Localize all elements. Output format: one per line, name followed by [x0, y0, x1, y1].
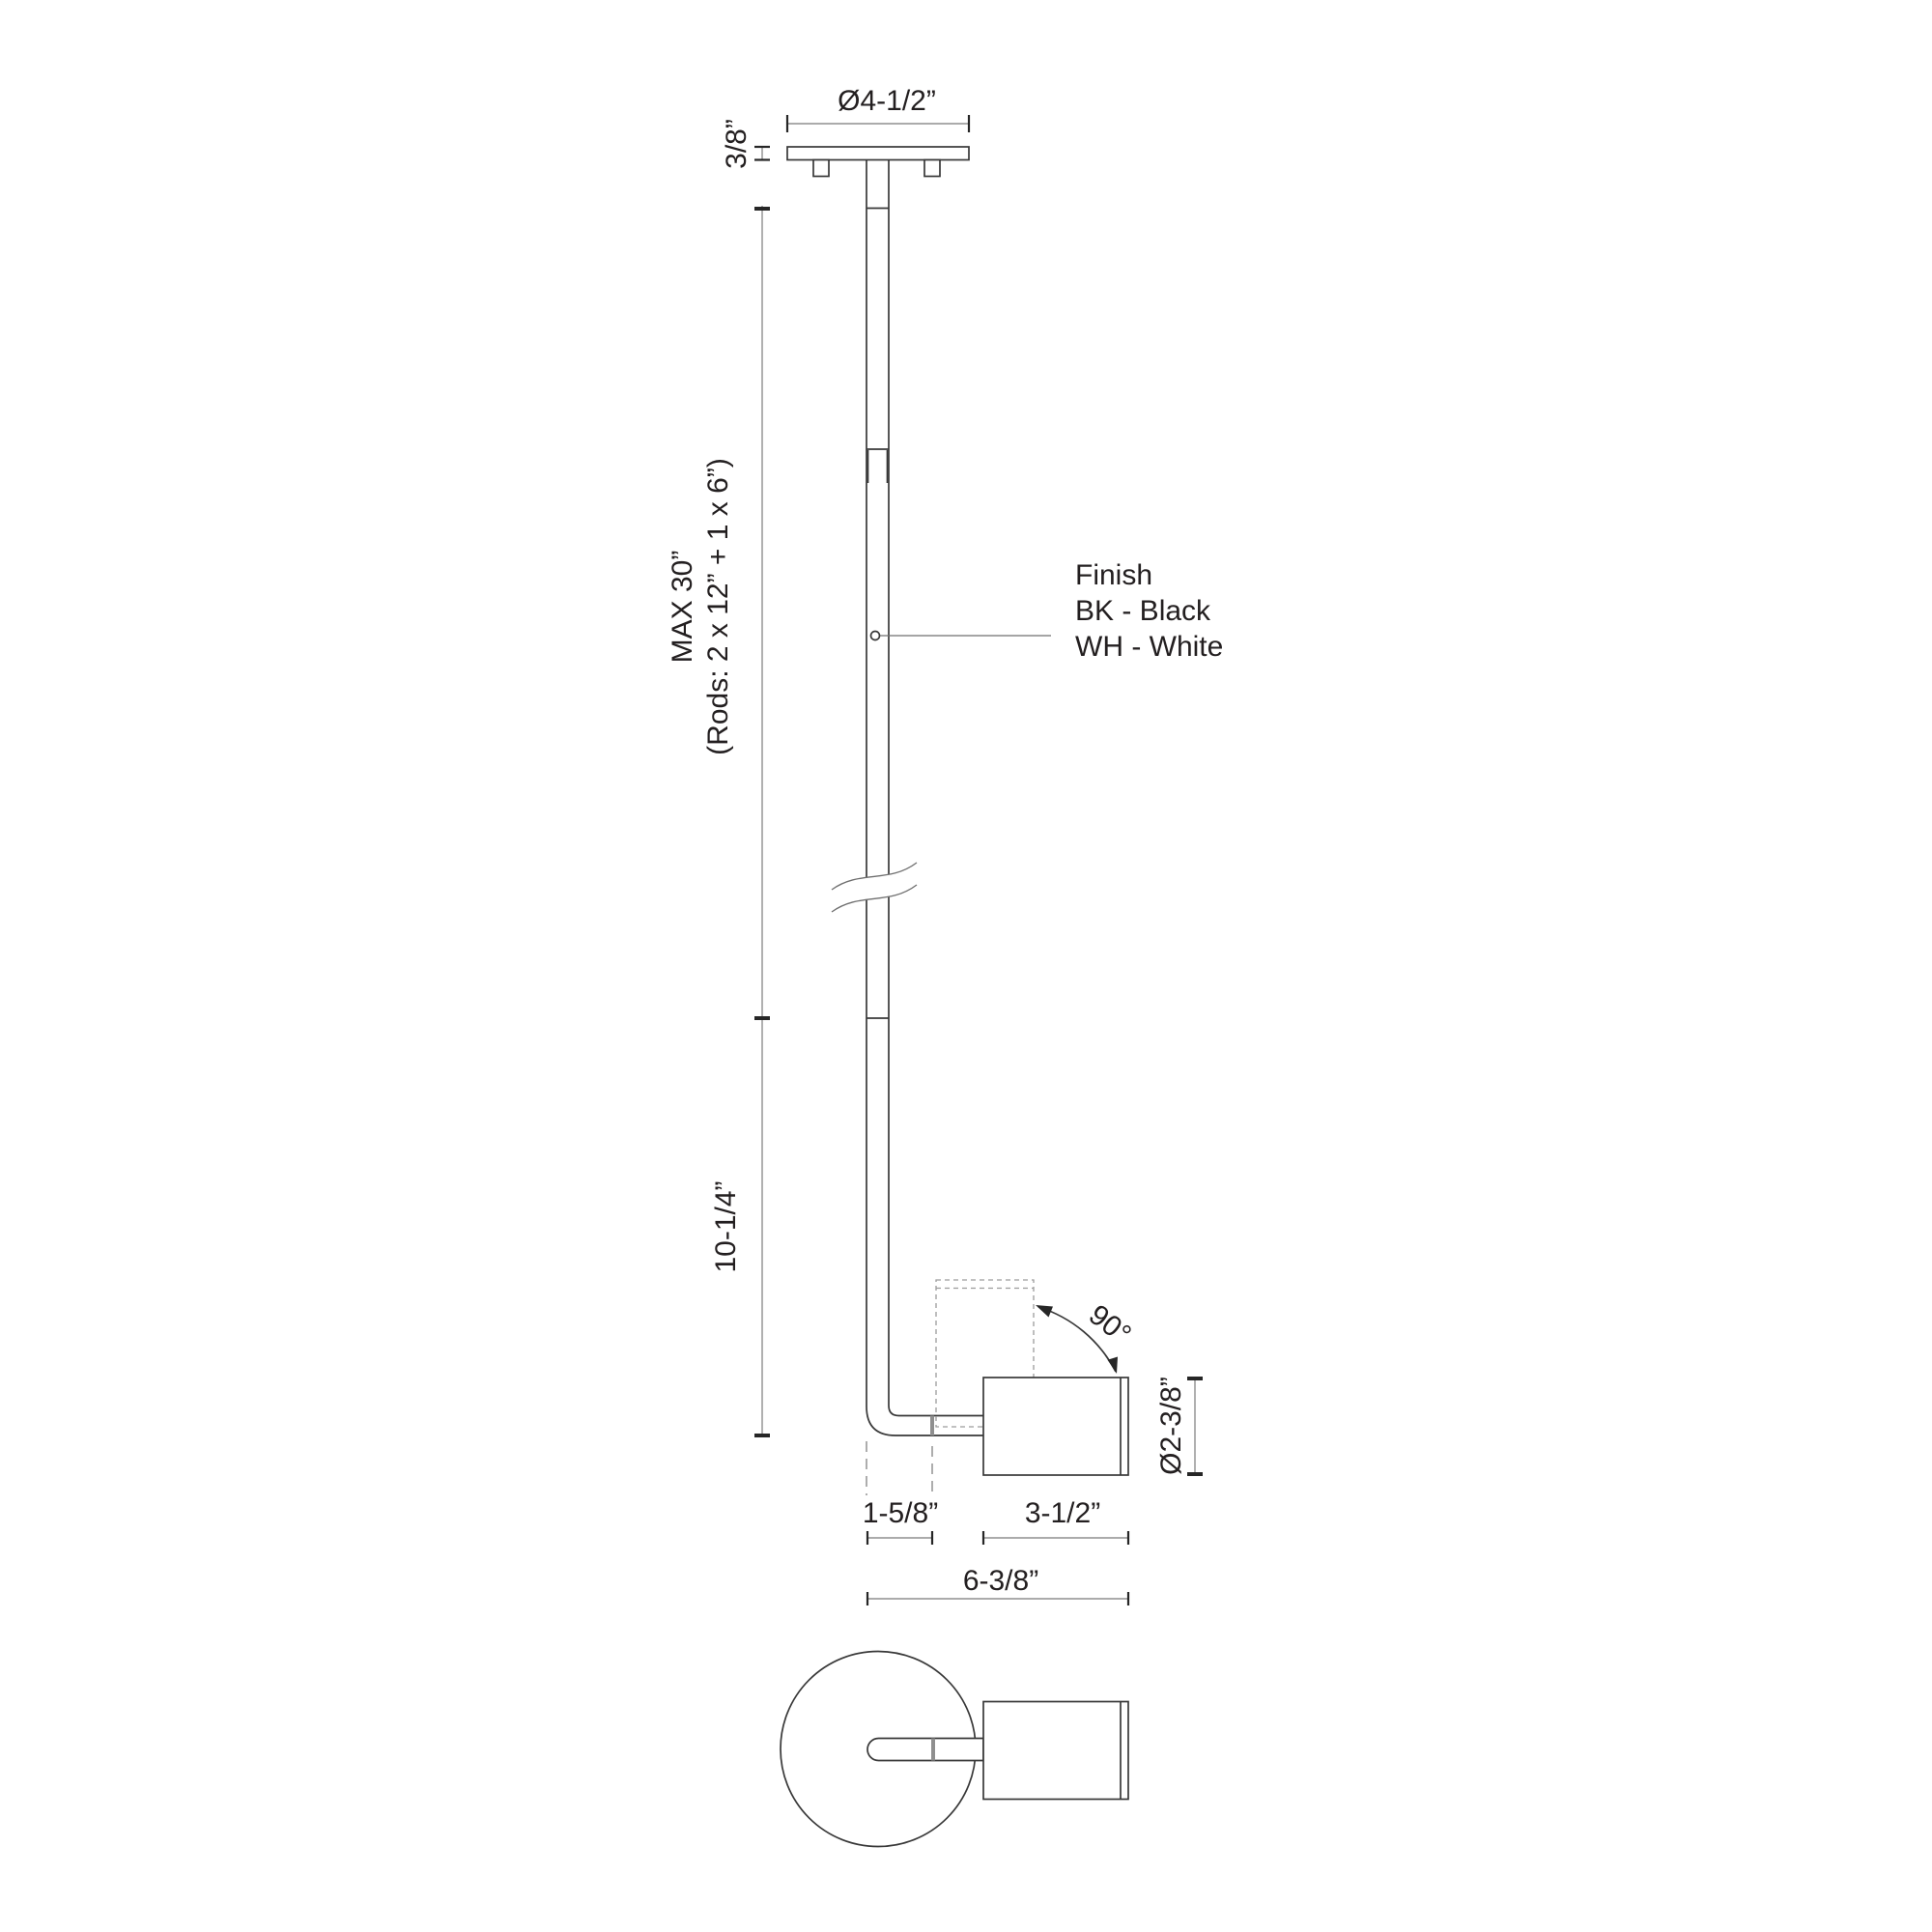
- head-diameter-dimension: Ø2-3/8”: [1155, 1377, 1203, 1475]
- head-diameter-label: Ø2-3/8”: [1155, 1377, 1187, 1475]
- spec-drawing-page: Ø4-1/2” 3/8”: [0, 0, 1932, 1932]
- drop-length-label: 10-1/4”: [710, 1180, 742, 1272]
- suspension-rod: [832, 159, 983, 1435]
- bottom-view: [781, 1652, 1128, 1847]
- rod-max-length-label: MAX 30”: [667, 551, 698, 664]
- arm-plan-capsule: [867, 1739, 983, 1761]
- rotation-angle-label: 90°: [1083, 1299, 1137, 1351]
- overall-width-dimension: 6-3/8”: [867, 1565, 1128, 1605]
- side-view: Ø4-1/2” 3/8”: [667, 85, 1223, 1605]
- ceiling-canopy: [787, 147, 969, 177]
- cylinder-head-side: [983, 1378, 1128, 1475]
- canopy-tab-right: [924, 160, 940, 177]
- canopy-tab-left: [813, 160, 829, 177]
- canopy-thickness-label: 3/8”: [721, 119, 753, 169]
- head-length-dimension: 3-1/2”: [983, 1497, 1128, 1545]
- canopy-thickness-dimension: 3/8”: [721, 119, 770, 169]
- canopy-diameter-dimension: Ø4-1/2”: [787, 85, 969, 132]
- cylinder-head-plan: [983, 1702, 1128, 1800]
- canopy-diameter-label: Ø4-1/2”: [838, 85, 936, 117]
- rod-elbow-arm: [867, 1406, 983, 1435]
- rod-break-symbol: [832, 863, 917, 912]
- rotation-arc: 90°: [1036, 1299, 1137, 1374]
- offset-dimension: 1-5/8”: [863, 1441, 938, 1545]
- arc-arrowhead-top: [1036, 1305, 1053, 1318]
- head-offset-label: 1-5/8”: [863, 1497, 938, 1529]
- finish-note: Finish BK - Black WH - White: [871, 559, 1224, 663]
- fixture-dimension-diagram: Ø4-1/2” 3/8”: [0, 0, 1932, 1932]
- finish-option-white: WH - White: [1075, 631, 1223, 663]
- rod-note-label: (Rods: 2 x 12” + 1 x 6”): [702, 458, 734, 755]
- rod-length-dimension: MAX 30” (Rods: 2 x 12” + 1 x 6”) 10-1/4”: [667, 206, 770, 1437]
- overall-width-label: 6-3/8”: [963, 1565, 1038, 1597]
- finish-title: Finish: [1075, 559, 1152, 591]
- leader-dot: [871, 632, 880, 640]
- finish-option-black: BK - Black: [1075, 595, 1211, 627]
- head-length-label: 3-1/2”: [1025, 1497, 1100, 1529]
